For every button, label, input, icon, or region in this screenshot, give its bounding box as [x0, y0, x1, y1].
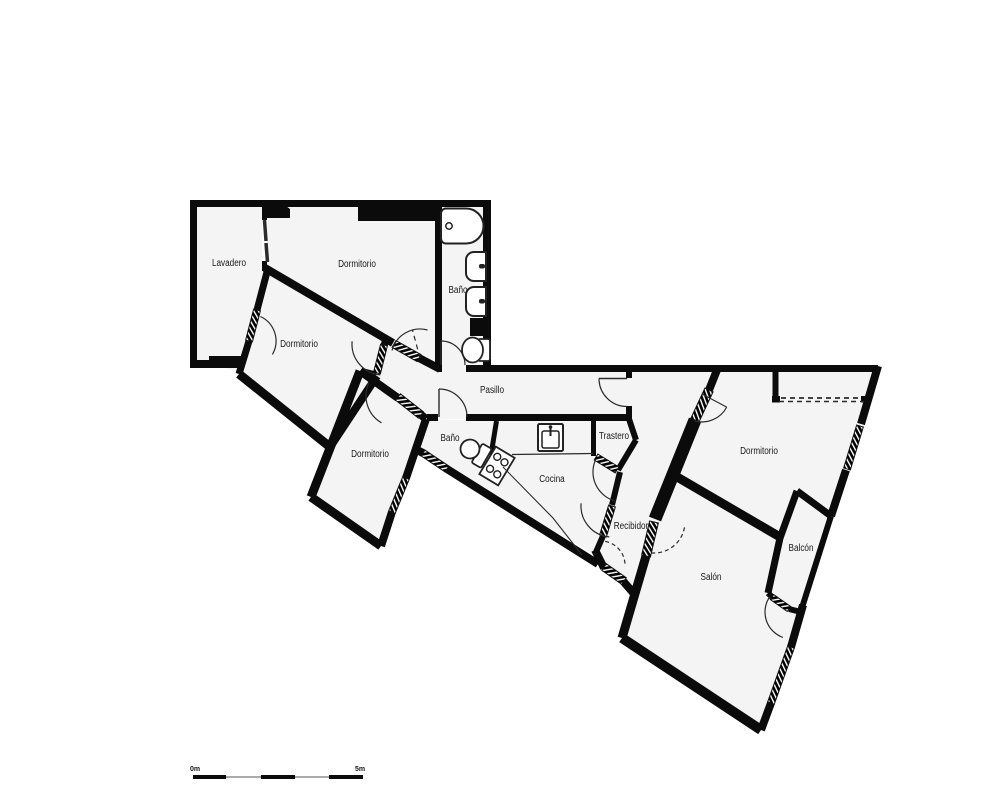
svg-text:Dormitorio: Dormitorio [740, 444, 778, 456]
svg-text:Dormitorio: Dormitorio [280, 337, 318, 349]
svg-text:0m: 0m [190, 766, 200, 773]
svg-text:Trastero: Trastero [599, 429, 629, 441]
svg-text:Lavadero: Lavadero [212, 256, 246, 268]
svg-text:Pasillo: Pasillo [480, 383, 504, 395]
svg-text:Salón: Salón [701, 570, 722, 582]
svg-text:Dormitorio: Dormitorio [338, 257, 376, 269]
svg-text:Cocina: Cocina [539, 472, 565, 484]
svg-text:Baño: Baño [440, 431, 459, 443]
svg-text:5m: 5m [355, 766, 365, 773]
svg-text:Dormitorio: Dormitorio [351, 447, 389, 459]
svg-text:Baño: Baño [448, 283, 467, 295]
svg-text:Recibidor: Recibidor [614, 519, 649, 531]
svg-text:Balcón: Balcón [788, 541, 813, 553]
